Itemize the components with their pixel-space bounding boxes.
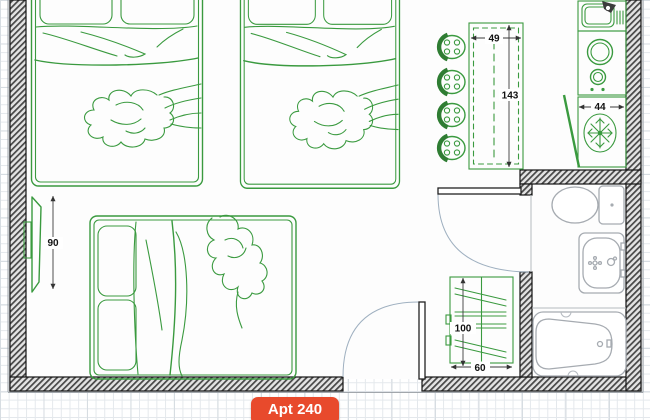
drain-icon [598,342,603,347]
entrance-door-leaf [419,302,425,379]
dimension-label-tv: 90 [47,238,59,249]
dimension-label-shelf-width: 60 [474,363,486,374]
stove-knob [601,88,604,91]
wall-bathroom-left [520,272,532,377]
apartment-badge[interactable]: Apt 240 [251,397,339,420]
wall-bottom-right [422,377,641,391]
bathroom-door-leaf [438,188,521,194]
wall-bathroom-door-jamb-top [520,184,532,195]
stove-knob [590,88,593,91]
wall-left [10,0,26,391]
dimension-label-shelf-height: 100 [455,324,472,335]
wall-kitchen-bathroom [520,170,641,184]
bathtub [533,312,626,376]
wall-right [626,0,641,391]
dimension-label-island-length: 143 [502,91,519,102]
dimension-label-island-width: 49 [488,34,500,45]
dimension-label-fridge: 44 [594,102,606,113]
floorplan-drawing: 90 49 143 [0,0,650,420]
floorplan-canvas: 90 49 143 [0,0,650,420]
toilet [552,186,624,224]
washbasin [579,233,625,293]
